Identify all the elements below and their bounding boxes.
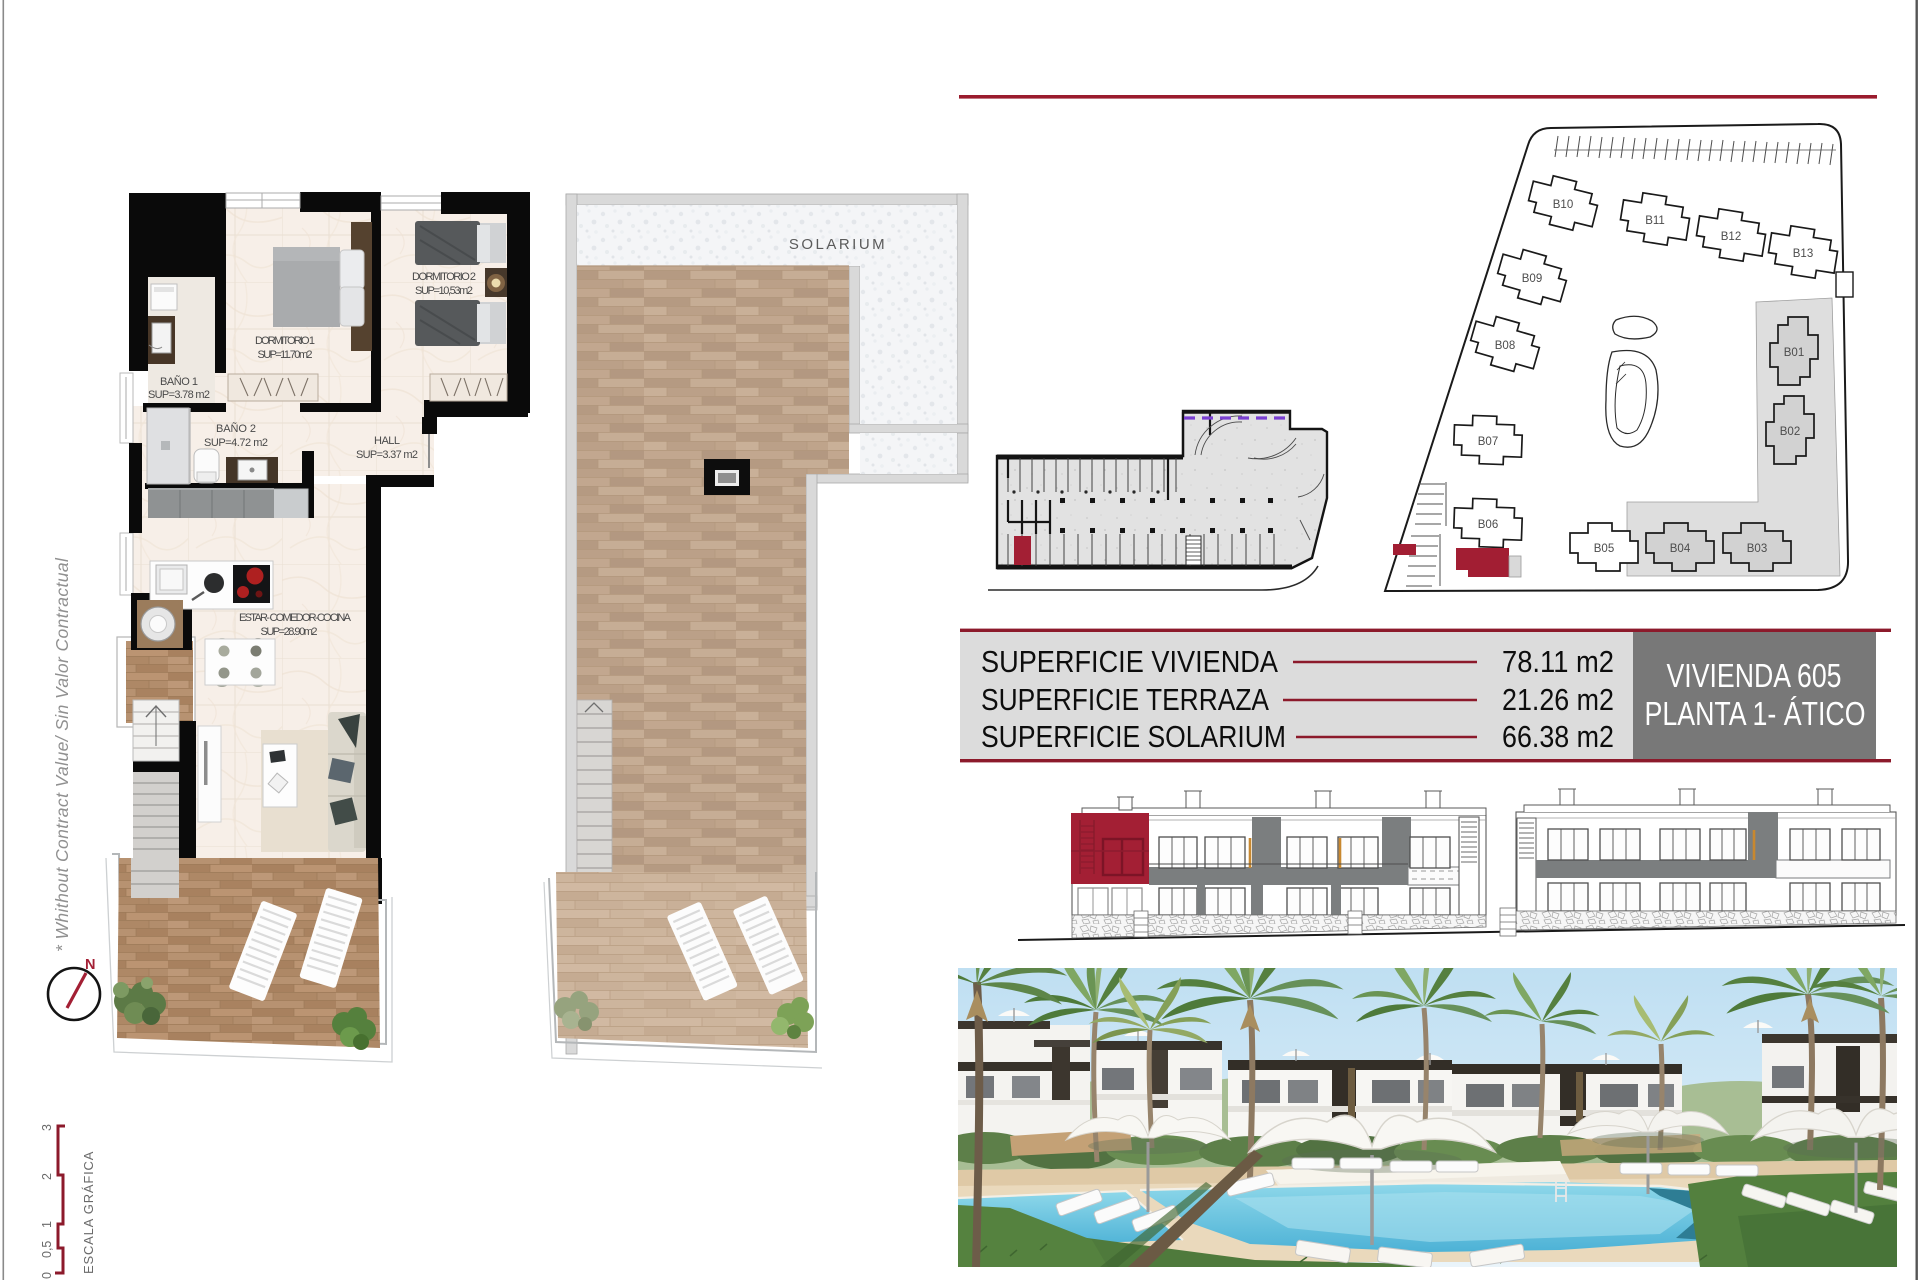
svg-text:1: 1 [40,1221,54,1228]
svg-text:21.26 m2: 21.26 m2 [1502,682,1614,717]
svg-text:B08: B08 [1495,340,1515,352]
svg-text:SUPERFICIE TERRAZA: SUPERFICIE TERRAZA [981,682,1269,717]
svg-text:DORMITORIO 1: DORMITORIO 1 [255,335,315,347]
svg-text:SUP=4.72 m2: SUP=4.72 m2 [204,437,268,449]
svg-text:ESTAR- COMEDOR-COCINA: ESTAR- COMEDOR-COCINA [239,612,352,624]
svg-text:B10: B10 [1553,199,1573,211]
svg-text:B07: B07 [1478,436,1498,448]
svg-text:B06: B06 [1478,519,1498,531]
svg-text:N: N [85,957,95,973]
svg-text:B09: B09 [1522,273,1542,285]
svg-text:BAÑO 2: BAÑO 2 [216,422,256,435]
svg-text:* Whithout Contract Value/ Sin: * Whithout Contract Value/ Sin Valor Con… [52,557,72,952]
svg-text:DORMITORIO 2: DORMITORIO 2 [412,271,476,283]
svg-text:VIVIENDA 605: VIVIENDA 605 [1667,657,1842,694]
svg-text:B02: B02 [1780,426,1800,438]
svg-text:78.11 m2: 78.11 m2 [1502,644,1614,679]
svg-text:0,5: 0,5 [40,1241,54,1258]
svg-text:0: 0 [40,1272,54,1279]
svg-text:B01: B01 [1784,347,1804,359]
svg-text:SOLARIUM: SOLARIUM [789,236,887,253]
svg-text:2: 2 [40,1173,54,1180]
svg-text:3: 3 [40,1124,54,1131]
svg-text:SUP=28.90m2: SUP=28.90m2 [261,626,318,638]
svg-text:HALL: HALL [374,435,400,447]
svg-text:SUP=3.37 m2: SUP=3.37 m2 [356,449,418,461]
svg-text:B11: B11 [1645,215,1665,227]
svg-text:B12: B12 [1721,231,1741,243]
svg-text:SUPERFICIE VIVIENDA: SUPERFICIE VIVIENDA [981,644,1278,679]
svg-text:66.38 m2: 66.38 m2 [1502,719,1614,754]
svg-text:B05: B05 [1594,543,1614,555]
svg-text:PLANTA 1- ÁTICO: PLANTA 1- ÁTICO [1645,695,1866,732]
svg-text:B03: B03 [1747,543,1767,555]
svg-text:B04: B04 [1670,543,1691,555]
svg-text:ESCALA GRÁFICA: ESCALA GRÁFICA [81,1151,96,1274]
svg-text:SUP=11.70m2: SUP=11.70m2 [258,349,313,361]
svg-text:SUPERFICIE SOLARIUM: SUPERFICIE SOLARIUM [981,719,1286,754]
svg-text:SUP=3.78 m2: SUP=3.78 m2 [148,389,210,401]
svg-text:BAÑO 1: BAÑO 1 [160,375,198,388]
svg-text:B13: B13 [1793,248,1813,260]
svg-text:SUP=10,53m2: SUP=10,53m2 [415,285,473,297]
